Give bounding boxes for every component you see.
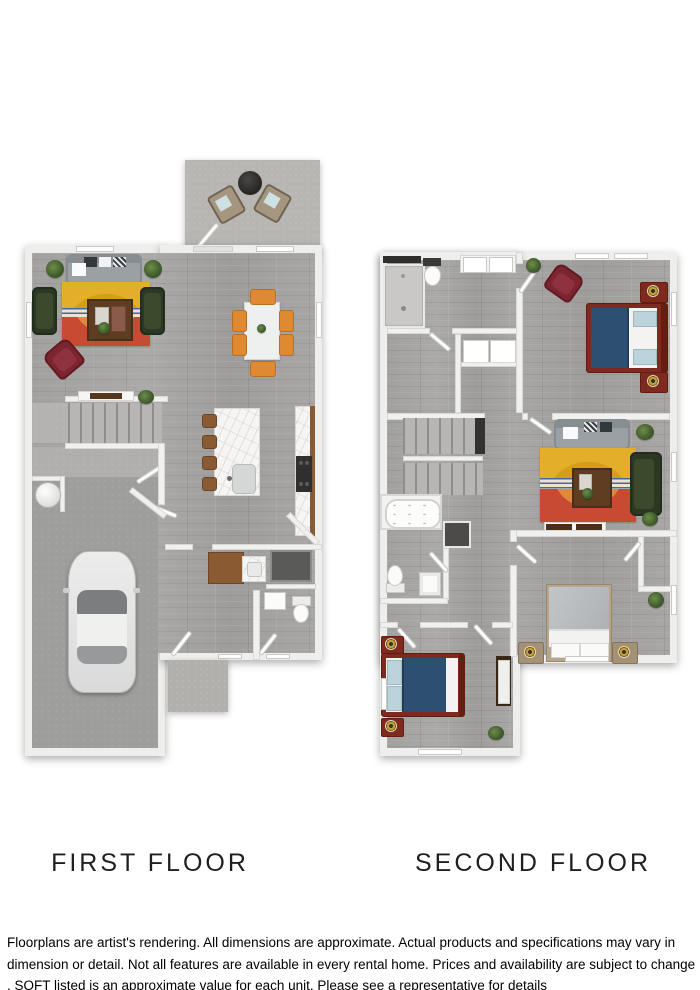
- window: [671, 585, 677, 615]
- pedestal-sink: [419, 572, 441, 596]
- coffee-table: [572, 468, 612, 508]
- toilet-bowl: [387, 565, 403, 586]
- hall-bath-wall: [443, 548, 449, 600]
- stair-railing: [403, 456, 483, 461]
- toilet: [423, 258, 441, 285]
- second-floor-label: SECOND FLOOR: [415, 848, 651, 878]
- toilet-tank: [423, 258, 441, 266]
- window: [565, 656, 609, 662]
- window: [671, 292, 677, 326]
- disclaimer-line-1: Floorplans are artist's rendering. All d…: [7, 932, 697, 954]
- bed-gray: [546, 584, 612, 662]
- plant: [636, 424, 654, 440]
- window: [671, 452, 677, 482]
- bedroom2-top-wall: [380, 622, 398, 628]
- duvet-blue: [402, 658, 446, 712]
- pillow: [633, 311, 657, 327]
- shower-head: [401, 274, 405, 278]
- dresser: [496, 656, 511, 706]
- stairs-lower-flight: [403, 463, 483, 495]
- headboard: [661, 304, 667, 372]
- plant: [526, 258, 541, 273]
- table-lamp: [385, 638, 397, 650]
- sofa-pillow-striped: [584, 422, 597, 432]
- primary-divider-wall: [516, 252, 523, 264]
- upper-hall-wall: [522, 413, 528, 420]
- bath-closet-wall: [387, 328, 430, 334]
- chair-seat: [551, 272, 577, 297]
- stairwell-void: [475, 418, 485, 454]
- sofa-throw-blanket: [563, 427, 578, 439]
- window: [614, 253, 648, 259]
- sofa-seat: [634, 459, 654, 509]
- primary-divider-wall: [516, 288, 523, 413]
- window: [418, 749, 462, 755]
- first-floor-label: FIRST FLOOR: [51, 848, 249, 878]
- linen-closet: [463, 340, 515, 362]
- linen-shelf: [490, 340, 516, 364]
- plant: [488, 726, 504, 740]
- dresser-drawers: [498, 660, 510, 704]
- linen-closet-wall: [461, 362, 517, 367]
- disclaimer-line-2: dimension or detail. Not all features ar…: [7, 954, 697, 976]
- walk-in-shower: [383, 264, 425, 328]
- bedroom2-top-wall: [492, 622, 513, 628]
- table-lamp: [647, 285, 659, 297]
- bath-closet-wall: [452, 328, 517, 334]
- disclaimer-line-3: . SQFT listed is an approximate value fo…: [7, 975, 697, 990]
- bed-blue: [381, 653, 465, 717]
- window: [381, 678, 387, 710]
- pillow: [387, 660, 402, 685]
- toilet-bowl: [424, 266, 441, 286]
- vanity-sink: [489, 257, 513, 273]
- floorplan-canvas: FIRST FLOOR SECOND FLOOR Floorplans are …: [0, 0, 700, 990]
- sofa-pillow-dark: [600, 422, 612, 432]
- disclaimer-text: Floorplans are artist's rendering. All d…: [7, 932, 697, 990]
- bedroom2-top-wall: [420, 622, 468, 628]
- green-sofa: [630, 452, 662, 516]
- pillow: [387, 686, 402, 711]
- bathtub: [385, 499, 441, 529]
- plant: [642, 512, 658, 526]
- hall-bath-wall: [380, 598, 448, 604]
- second-floor-plan: [0, 0, 700, 990]
- bedroom3-left-wall: [510, 530, 517, 542]
- bedroom3-top-wall: [516, 530, 677, 537]
- footboard: [459, 654, 464, 716]
- primary-bed: [586, 303, 668, 373]
- duvet-blue: [591, 308, 629, 368]
- linen-shelf: [463, 340, 489, 364]
- table-lamp: [618, 646, 630, 658]
- table-lamp: [647, 375, 659, 387]
- storage-closet: [443, 521, 471, 548]
- table-lamp: [524, 646, 536, 658]
- plant: [582, 488, 593, 499]
- duvet-gray: [549, 587, 609, 631]
- bedroom3-left-wall: [510, 565, 517, 657]
- shower-drain: [401, 306, 406, 311]
- vanity-sink: [463, 257, 487, 273]
- shower-ledge: [383, 256, 421, 263]
- plant: [648, 592, 664, 608]
- window: [575, 253, 609, 259]
- toilet: [386, 565, 403, 591]
- stairs-upper-flight: [403, 418, 475, 454]
- double-vanity: [460, 255, 516, 273]
- table-lamp: [385, 720, 397, 732]
- closet-side-wall: [455, 334, 461, 413]
- gray-sofa: [554, 419, 630, 450]
- pillow: [633, 349, 657, 365]
